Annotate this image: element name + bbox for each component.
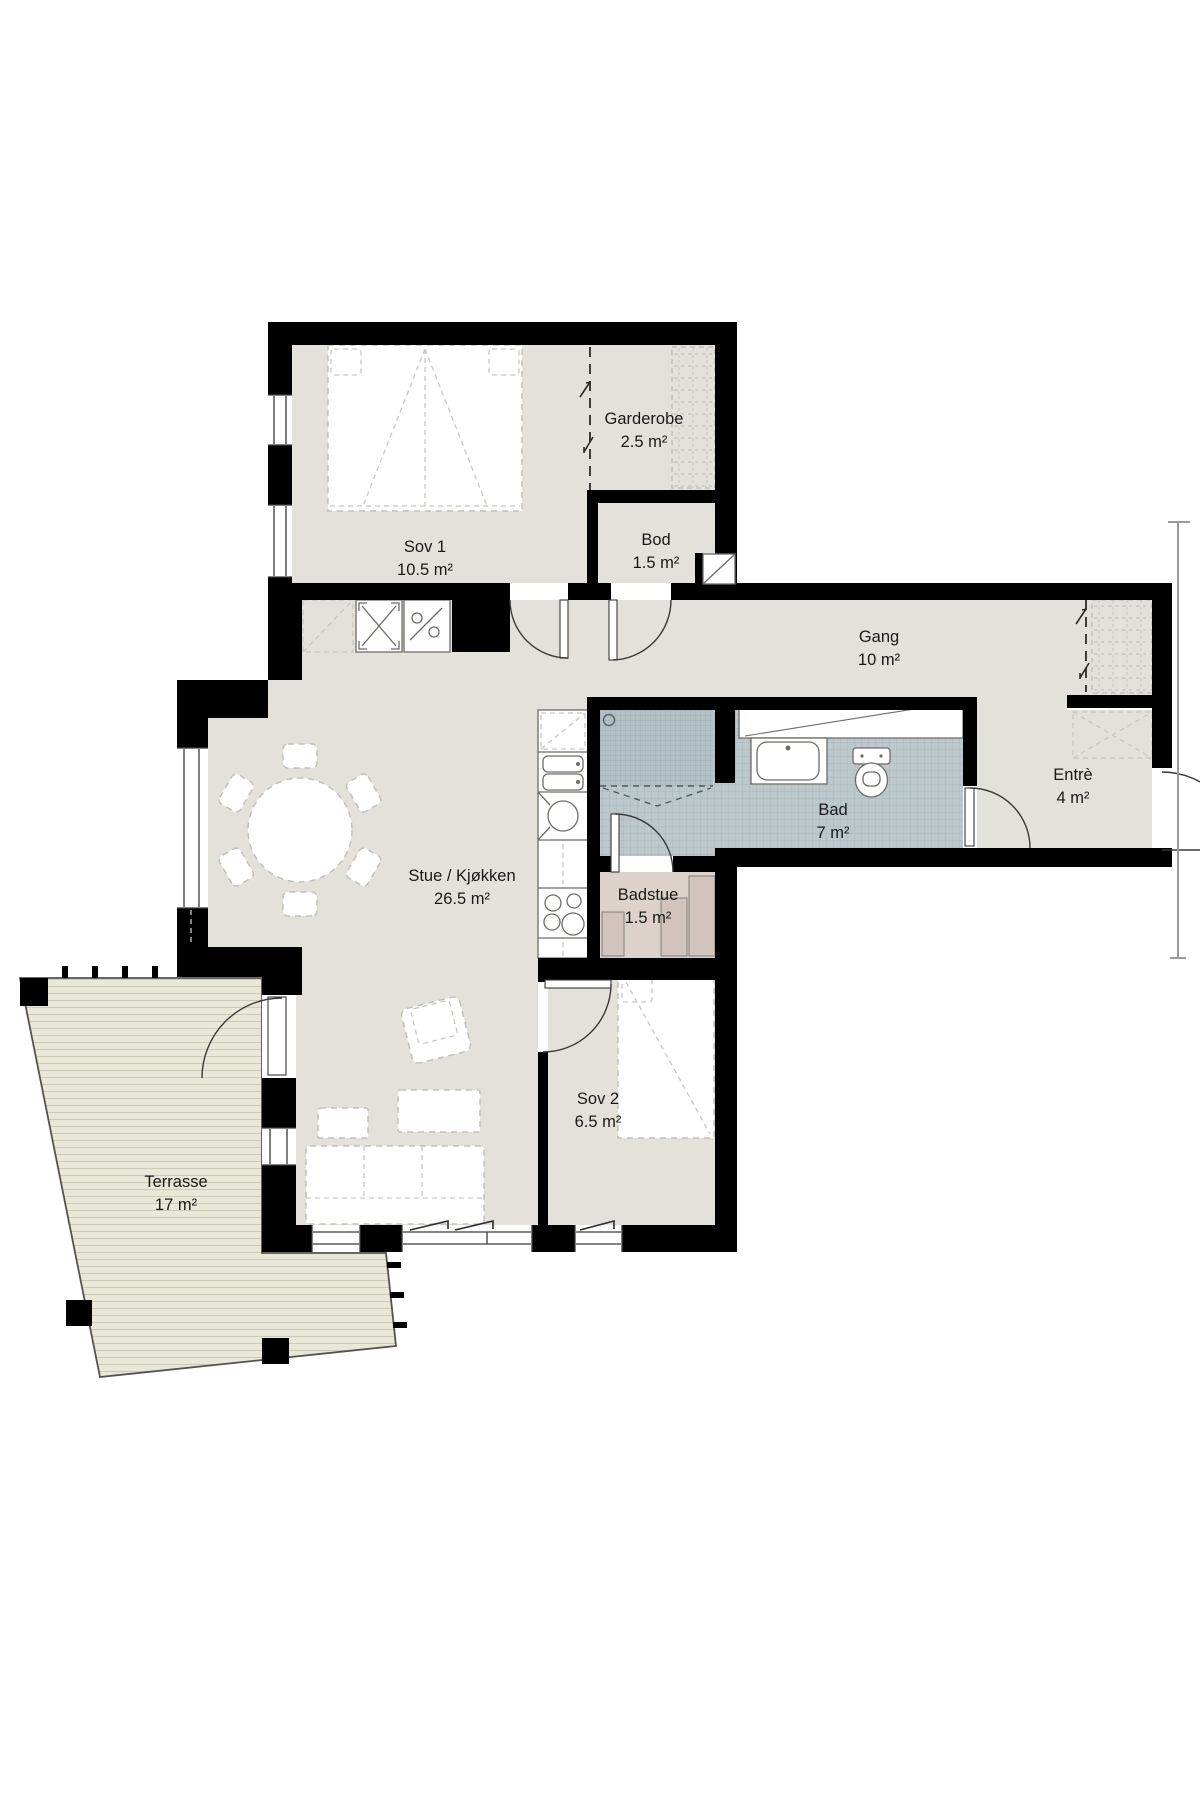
- floor-plan-drawing: Sov 1 10.5 m² Garderobe 2.5 m² Bod 1.5 m…: [0, 0, 1200, 1800]
- bed-sov2: [618, 974, 714, 1138]
- label-gang: Gang: [859, 628, 899, 646]
- stool: [318, 1108, 368, 1138]
- coffee-table: [398, 1090, 480, 1132]
- floor-plan-page: Sov 1 10.5 m² Garderobe 2.5 m² Bod 1.5 m…: [0, 0, 1200, 1800]
- label-garderobe-area: 2.5 m²: [621, 433, 668, 451]
- dining-table: [248, 778, 352, 882]
- label-garderobe: Garderobe: [605, 410, 684, 428]
- faucet-icon: [786, 746, 791, 751]
- terrace-post: [20, 978, 48, 1006]
- sauna-bench: [661, 898, 687, 956]
- toilet: [853, 748, 890, 797]
- label-terrasse-area: 17 m²: [155, 1196, 198, 1214]
- shower-area: [600, 710, 713, 786]
- label-bad-area: 7 m²: [817, 824, 851, 842]
- dining-chair: [283, 744, 317, 768]
- label-bad: Bad: [818, 801, 847, 819]
- label-sov1-area: 10.5 m²: [397, 561, 453, 579]
- label-entre: Entrè: [1053, 766, 1092, 784]
- label-entre-area: 4 m²: [1057, 789, 1091, 807]
- dryer: [404, 600, 450, 652]
- label-stue-area: 26.5 m²: [434, 890, 490, 908]
- kitchen-counter: [538, 710, 588, 958]
- label-stue: Stue / Kjøkken: [408, 867, 515, 885]
- label-bod-area: 1.5 m²: [633, 554, 680, 572]
- water-heater: [703, 554, 735, 584]
- label-sov1: Sov 1: [404, 538, 446, 556]
- label-badstue-area: 1.5 m²: [625, 909, 672, 927]
- terrace-post: [262, 1338, 289, 1364]
- terrace-post: [66, 1300, 92, 1326]
- label-terrasse: Terrasse: [144, 1173, 207, 1191]
- wardrobe-gang: [1092, 600, 1152, 693]
- label-gang-area: 10 m²: [858, 651, 901, 669]
- label-bod: Bod: [641, 531, 670, 549]
- wall-pier: [452, 583, 510, 652]
- sofa: [306, 1146, 484, 1224]
- label-sov2: Sov 2: [577, 1090, 619, 1108]
- washing-machine: [356, 600, 402, 652]
- label-sov2-area: 6.5 m²: [575, 1113, 622, 1131]
- sauna-bench: [689, 876, 715, 956]
- label-badstue: Badstue: [618, 886, 679, 904]
- sauna-bench: [602, 912, 624, 956]
- shower-partition: [715, 697, 735, 783]
- dining-chair: [283, 892, 317, 916]
- bed-sov1: [328, 345, 522, 511]
